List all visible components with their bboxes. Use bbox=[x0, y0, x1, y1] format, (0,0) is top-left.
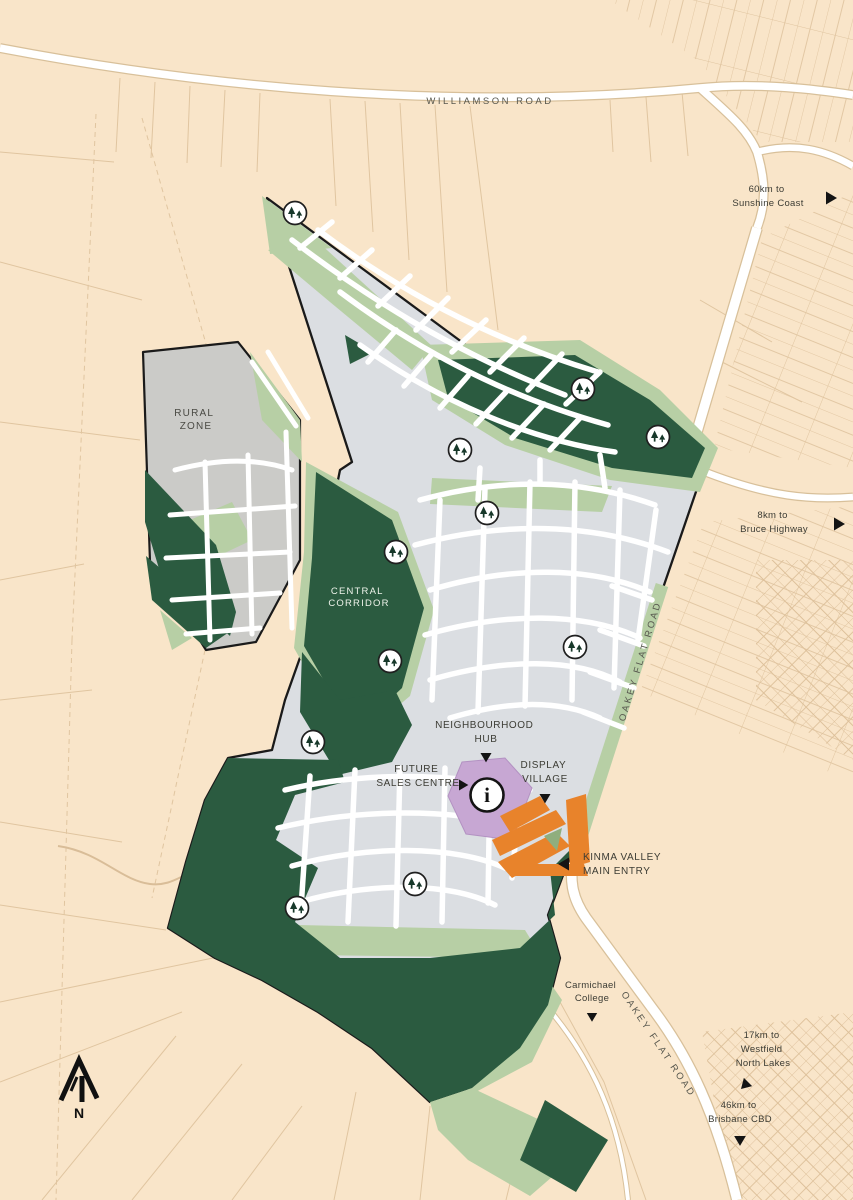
tree-park-icon bbox=[564, 636, 587, 659]
tree-park-icon bbox=[404, 873, 427, 896]
williamson-road-label: WILLIAMSON ROAD bbox=[426, 96, 553, 107]
tree-park-icon bbox=[647, 426, 670, 449]
masterplan-map: RURAL ZONE bbox=[0, 0, 853, 1200]
westfield-distance-label: 17km to Westfield North Lakes bbox=[736, 1030, 791, 1069]
info-icon-glyph: i bbox=[484, 783, 490, 807]
tree-park-icon bbox=[449, 439, 472, 462]
tree-park-icon bbox=[379, 650, 402, 673]
tree-park-icon bbox=[572, 378, 595, 401]
north-label: N bbox=[74, 1105, 84, 1121]
central-corridor-label: CENTRAL CORRIDOR bbox=[328, 586, 389, 609]
map-canvas: RURAL ZONE bbox=[0, 0, 853, 1200]
tree-park-icon bbox=[302, 731, 325, 754]
tree-park-icon bbox=[385, 541, 408, 564]
tree-park-icon bbox=[284, 202, 307, 225]
tree-park-icon bbox=[286, 897, 309, 920]
tree-park-icon bbox=[476, 502, 499, 525]
